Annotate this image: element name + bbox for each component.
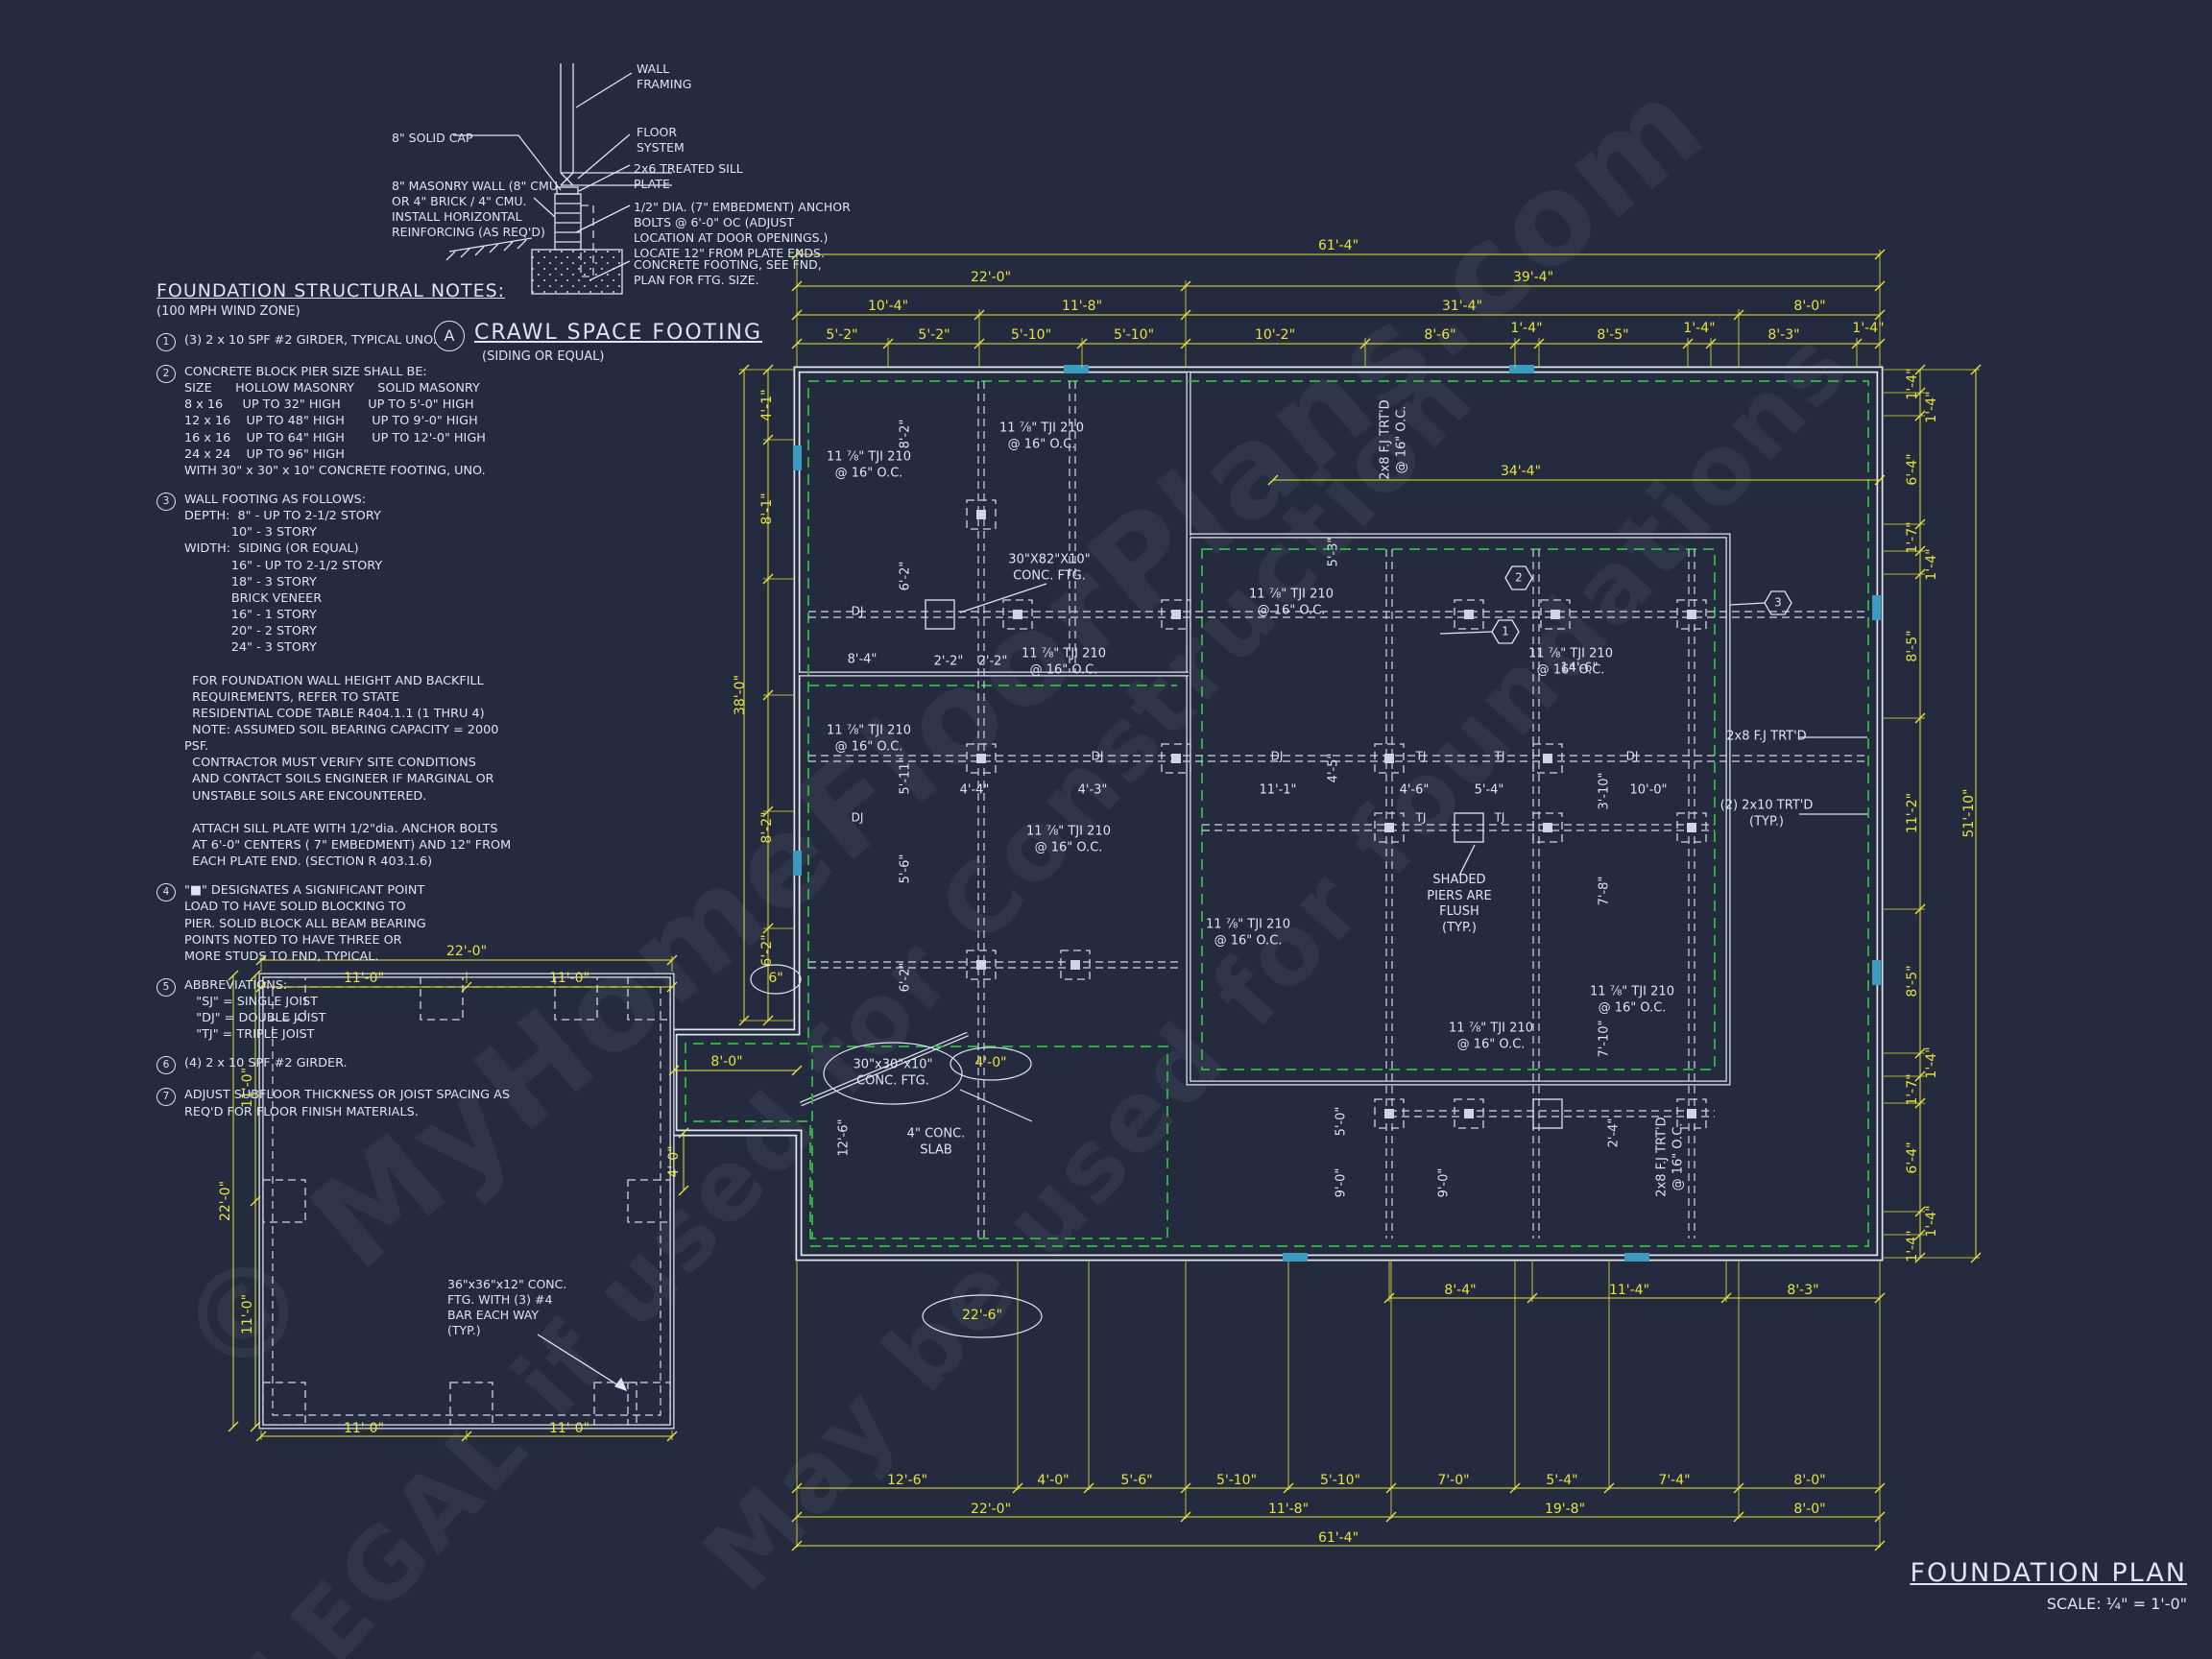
dimension-label: 1'-4" bbox=[1924, 548, 1941, 580]
notes-title: FOUNDATION STRUCTURAL NOTES: bbox=[156, 280, 514, 301]
annotation-label: 4" CONC. SLAB bbox=[907, 1126, 966, 1158]
annotation-label: (2) 2x10 TRT'D (TYP.) bbox=[1720, 798, 1814, 829]
annotation-label: 2'-4" bbox=[1607, 1118, 1623, 1148]
note-number: 4 bbox=[156, 883, 176, 902]
note-item: 5ABBREVIATIONS: "SJ" = SINGLE JOIST "DJ"… bbox=[156, 977, 514, 1044]
note-number: 5 bbox=[156, 978, 176, 997]
dimension-label: 5'-2" bbox=[918, 327, 950, 345]
dimension-label: 12'-6" bbox=[887, 1473, 927, 1490]
callout-label: WALL FRAMING bbox=[637, 61, 691, 92]
dimension-label: 1'-4" bbox=[1852, 321, 1884, 338]
dimension-label: 8'-6" bbox=[1424, 327, 1455, 345]
note-item: 6(4) 2 x 10 SPF #2 GIRDER. bbox=[156, 1055, 514, 1074]
dimension-label: 8'-3" bbox=[1767, 327, 1799, 345]
note-item: 2CONCRETE BLOCK PIER SIZE SHALL BE: SIZE… bbox=[156, 364, 514, 479]
dimension-label: 11'-4" bbox=[1609, 1283, 1649, 1300]
annotation-label: 12'-6" bbox=[837, 1118, 854, 1156]
detail-title: A CRAWL SPACE FOOTING (SIDING OR EQUAL) bbox=[434, 321, 762, 364]
dimension-label: 11'-0" bbox=[344, 1421, 384, 1438]
dimension-label: 7'-4" bbox=[1658, 1473, 1690, 1490]
annotation-label: 4'-6" bbox=[1400, 783, 1430, 800]
annotation-label: 2 bbox=[1515, 570, 1523, 585]
dimension-label: 11'-0" bbox=[549, 971, 589, 988]
detail-title-text: CRAWL SPACE FOOTING bbox=[474, 321, 762, 345]
dimension-label: 22'-0" bbox=[971, 270, 1011, 287]
annotation-label: TJ bbox=[1495, 810, 1505, 825]
foundation-structural-notes: FOUNDATION STRUCTURAL NOTES: (100 MPH WI… bbox=[156, 280, 514, 1133]
dimension-label: 6'-4" bbox=[1905, 453, 1922, 485]
annotation-label: 11 ⅞" TJI 210 @ 16" O.C. bbox=[1026, 824, 1111, 855]
note-number: 6 bbox=[156, 1056, 176, 1074]
annotation-label: 2'-2" bbox=[978, 655, 1008, 671]
dimension-label: 5'-10" bbox=[1216, 1473, 1257, 1490]
annotation-label: 11 ⅞" TJI 210 @ 16" O.C. bbox=[1022, 646, 1106, 678]
dimension-label: 8'-3" bbox=[1787, 1283, 1818, 1300]
dimension-label: 11'-0" bbox=[240, 1294, 257, 1334]
dimension-label: 1'-7" bbox=[1905, 521, 1922, 553]
dimension-label: 11'-2" bbox=[1905, 793, 1922, 833]
dimension-label: 6" bbox=[768, 971, 782, 988]
dimension-label: 8'-0" bbox=[1793, 299, 1825, 316]
note-number: 7 bbox=[156, 1088, 176, 1106]
note-text: WALL FOOTING AS FOLLOWS: DEPTH: 8" - UP … bbox=[184, 492, 514, 870]
annotation-label: 10'-0" bbox=[1629, 783, 1667, 800]
annotation-label: 4'-4" bbox=[960, 783, 990, 800]
callout-label: 8" MASONRY WALL (8" CMU OR 4" BRICK / 4"… bbox=[392, 179, 558, 240]
dimension-label: 5'-10" bbox=[1320, 1473, 1360, 1490]
dimension-label: 5'-10" bbox=[1011, 327, 1051, 345]
dimension-label: 1'-7" bbox=[1905, 1073, 1922, 1105]
annotation-label: DJ bbox=[1092, 749, 1104, 763]
dimension-label: 38'-0" bbox=[733, 675, 750, 715]
annotation-label: 2x8 F.J TRT'D @ 16" O.C. bbox=[1378, 399, 1409, 479]
annotation-label: 11 ⅞" TJI 210 @ 16" O.C. bbox=[1449, 1021, 1533, 1052]
annotation-label: DJ bbox=[1271, 749, 1284, 763]
annotation-label: 1 bbox=[1502, 624, 1509, 638]
dimension-label: 22'-6" bbox=[962, 1308, 1002, 1325]
sheet-title: FOUNDATION PLAN bbox=[1910, 1558, 2187, 1588]
annotation-label: 5'-3" bbox=[1327, 538, 1343, 567]
dimension-label: 39'-4" bbox=[1513, 270, 1553, 287]
note-item: 7ADJUST SUBFLOOR THICKNESS OR JOIST SPAC… bbox=[156, 1087, 514, 1119]
dimension-label: 8'-5" bbox=[1597, 327, 1628, 345]
annotation-label: 5'-0" bbox=[1334, 1107, 1351, 1137]
note-number: 2 bbox=[156, 365, 176, 383]
dimension-label: 61'-4" bbox=[1318, 238, 1358, 255]
extension-lines bbox=[261, 250, 1980, 1548]
annotation-label: 7'-10" bbox=[1598, 1020, 1614, 1057]
dimension-label: 1'-4" bbox=[1905, 1230, 1922, 1262]
annotation-label: TJ bbox=[1416, 810, 1427, 825]
annotation-label: 3 bbox=[1774, 595, 1782, 610]
callout-label: 2x6 TREATED SILL PLATE bbox=[634, 161, 743, 192]
dimension-label: 10'-4" bbox=[868, 299, 908, 316]
callout-label: FLOOR SYSTEM bbox=[637, 125, 685, 156]
callout-label: 36"x36"x12" CONC. FTG. WITH (3) #4 BAR E… bbox=[447, 1277, 566, 1338]
dimension-label: 8'-0" bbox=[710, 1054, 742, 1071]
dimension-label: 11'-8" bbox=[1268, 1502, 1309, 1519]
note-text: ABBREVIATIONS: "SJ" = SINGLE JOIST "DJ" … bbox=[184, 977, 325, 1044]
annotation-label: DJ bbox=[852, 810, 864, 825]
annotation-label: 11 ⅞" TJI 210 @ 16" O.C. bbox=[1206, 917, 1290, 949]
callout-label: 8" SOLID CAP bbox=[392, 131, 473, 146]
dimension-label: 5'-10" bbox=[1114, 327, 1154, 345]
annotation-label: 30"x30"x10" CONC. FTG. bbox=[854, 1057, 933, 1089]
blueprint-canvas: © MyHomeFloorPlans.comILLEGAL if used fo… bbox=[0, 0, 2212, 1659]
annotation-label: DJ bbox=[1626, 749, 1639, 763]
dimension-label: 1'-4" bbox=[1683, 321, 1715, 338]
dimension-label: 8'-1" bbox=[759, 493, 777, 524]
dimension-label: 7'-0" bbox=[1437, 1473, 1469, 1490]
dimension-label: 31'-4" bbox=[1442, 299, 1482, 316]
dimension-label: 8'-2" bbox=[759, 811, 777, 843]
annotation-label: 8'-4" bbox=[848, 653, 878, 669]
note-item: 4"■" DESIGNATES A SIGNIFICANT POINT LOAD… bbox=[156, 882, 514, 965]
dimension-label: 8'-5" bbox=[1905, 965, 1922, 997]
annotation-label: 11 ⅞" TJI 210 @ 16" O.C. bbox=[999, 421, 1084, 452]
dimension-label: 4'-0" bbox=[666, 1145, 684, 1177]
annotation-label: 4'-3" bbox=[1078, 783, 1108, 800]
annotation-label: 2x8 F.J TRT'D bbox=[1726, 730, 1806, 746]
note-number: 1 bbox=[156, 333, 176, 351]
title-block: FOUNDATION PLAN SCALE: ¼" = 1'-0" bbox=[1910, 1558, 2187, 1613]
dimension-label: 8'-0" bbox=[1793, 1502, 1825, 1519]
note-text: "■" DESIGNATES A SIGNIFICANT POINT LOAD … bbox=[184, 882, 426, 965]
dimension-label: 5'-4" bbox=[1546, 1473, 1577, 1490]
note-item: 3WALL FOOTING AS FOLLOWS: DEPTH: 8" - UP… bbox=[156, 492, 514, 870]
dimension-label: 11'-8" bbox=[1062, 299, 1102, 316]
annotation-label: 30"X82"X10" CONC. FTG. bbox=[1008, 552, 1090, 584]
dimension-label: 51'-10" bbox=[1961, 789, 1979, 838]
note-text: (4) 2 x 10 SPF #2 GIRDER. bbox=[184, 1055, 348, 1074]
dimension-label: 34'-4" bbox=[1501, 464, 1541, 481]
callout-label: CONCRETE FOOTING, SEE FND, PLAN FOR FTG.… bbox=[634, 257, 822, 288]
dimension-label: 4'-0" bbox=[974, 1055, 1006, 1072]
detail-subtitle-text: (SIDING OR EQUAL) bbox=[482, 349, 762, 364]
callout-label: 1/2" DIA. (7" EMBEDMENT) ANCHOR BOLTS @ … bbox=[634, 200, 851, 261]
annotation-label: DJ bbox=[852, 604, 864, 618]
dimension-label: 1'-4" bbox=[1905, 368, 1922, 399]
annotation-label: 11 ⅞" TJI 210 @ 16" O.C. bbox=[1528, 646, 1613, 678]
dimension-label: 4'-1" bbox=[759, 389, 777, 421]
dimension-label: 5'-6" bbox=[1120, 1473, 1152, 1490]
annotation-label: TJ bbox=[1416, 749, 1427, 763]
note-number: 3 bbox=[156, 493, 176, 511]
dimension-label: 61'-4" bbox=[1318, 1530, 1358, 1548]
annotation-label: 11 ⅞" TJI 210 @ 16" O.C. bbox=[1590, 984, 1674, 1016]
annotation-label: TJ bbox=[1495, 749, 1505, 763]
annotation-label: 4'-5" bbox=[1327, 754, 1343, 783]
dimension-label: 10'-2" bbox=[1255, 327, 1295, 345]
annotation-label: 2x8 F.J TRT'D @ 16" O.C. bbox=[1654, 1117, 1686, 1196]
annotation-label: 9'-0" bbox=[1334, 1168, 1351, 1198]
dimension-label: 8'-5" bbox=[1905, 630, 1922, 661]
annotation-label: 8'-2" bbox=[899, 420, 915, 449]
note-text: (3) 2 x 10 SPF #2 GIRDER, TYPICAL UNO. bbox=[184, 332, 437, 351]
annotation-label: SHADED PIERS ARE FLUSH (TYP.) bbox=[1427, 873, 1491, 937]
dimension-label: 1'-4" bbox=[1510, 321, 1542, 338]
annotation-label: 11 ⅞" TJI 210 @ 16" O.C. bbox=[1249, 587, 1334, 618]
dimension-label: 22'-0" bbox=[218, 1181, 235, 1221]
note-text: CONCRETE BLOCK PIER SIZE SHALL BE: SIZE … bbox=[184, 364, 486, 479]
dimension-label: 1'-4" bbox=[1924, 391, 1941, 422]
annotation-label: 5'-11" bbox=[899, 757, 915, 794]
dimension-label: 6'-4" bbox=[1905, 1142, 1922, 1173]
annotation-label: 3'-10" bbox=[1598, 772, 1614, 809]
sheet-scale: SCALE: ¼" = 1'-0" bbox=[1910, 1595, 2187, 1613]
dimension-label: 22'-0" bbox=[971, 1502, 1011, 1519]
annotation-label: 2'-2" bbox=[934, 655, 964, 671]
annotation-label: 6'-2" bbox=[899, 562, 915, 591]
annotation-label: 5'-4" bbox=[1475, 783, 1504, 800]
annotation-label: 6'-2" bbox=[899, 963, 915, 993]
detail-bubble: A bbox=[434, 321, 465, 351]
annotation-label: 7'-8" bbox=[1598, 877, 1614, 906]
annotation-label: 11'-1" bbox=[1259, 783, 1296, 800]
annotation-label: 9'-0" bbox=[1437, 1168, 1454, 1198]
dimension-label: 1'-4" bbox=[1924, 1046, 1941, 1078]
dimension-label: 8'-0" bbox=[1793, 1473, 1825, 1490]
dimension-label: 8'-4" bbox=[1444, 1283, 1476, 1300]
dimension-label: 11'-0" bbox=[549, 1421, 589, 1438]
annotation-label: 5'-6" bbox=[899, 854, 915, 884]
notes-subtitle: (100 MPH WIND ZONE) bbox=[156, 304, 514, 319]
dimension-label: 1'-4" bbox=[1924, 1205, 1941, 1237]
annotation-label: 11 ⅞" TJI 210 @ 16" O.C. bbox=[827, 723, 911, 755]
dimension-label: 6'-2" bbox=[759, 934, 777, 966]
dimension-label: 4'-0" bbox=[1037, 1473, 1069, 1490]
annotation-label: 11 ⅞" TJI 210 @ 16" O.C. bbox=[827, 449, 911, 481]
dimension-label: 19'-8" bbox=[1545, 1502, 1585, 1519]
dimension-label: 5'-2" bbox=[826, 327, 857, 345]
note-text: ADJUST SUBFLOOR THICKNESS OR JOIST SPACI… bbox=[184, 1087, 510, 1119]
